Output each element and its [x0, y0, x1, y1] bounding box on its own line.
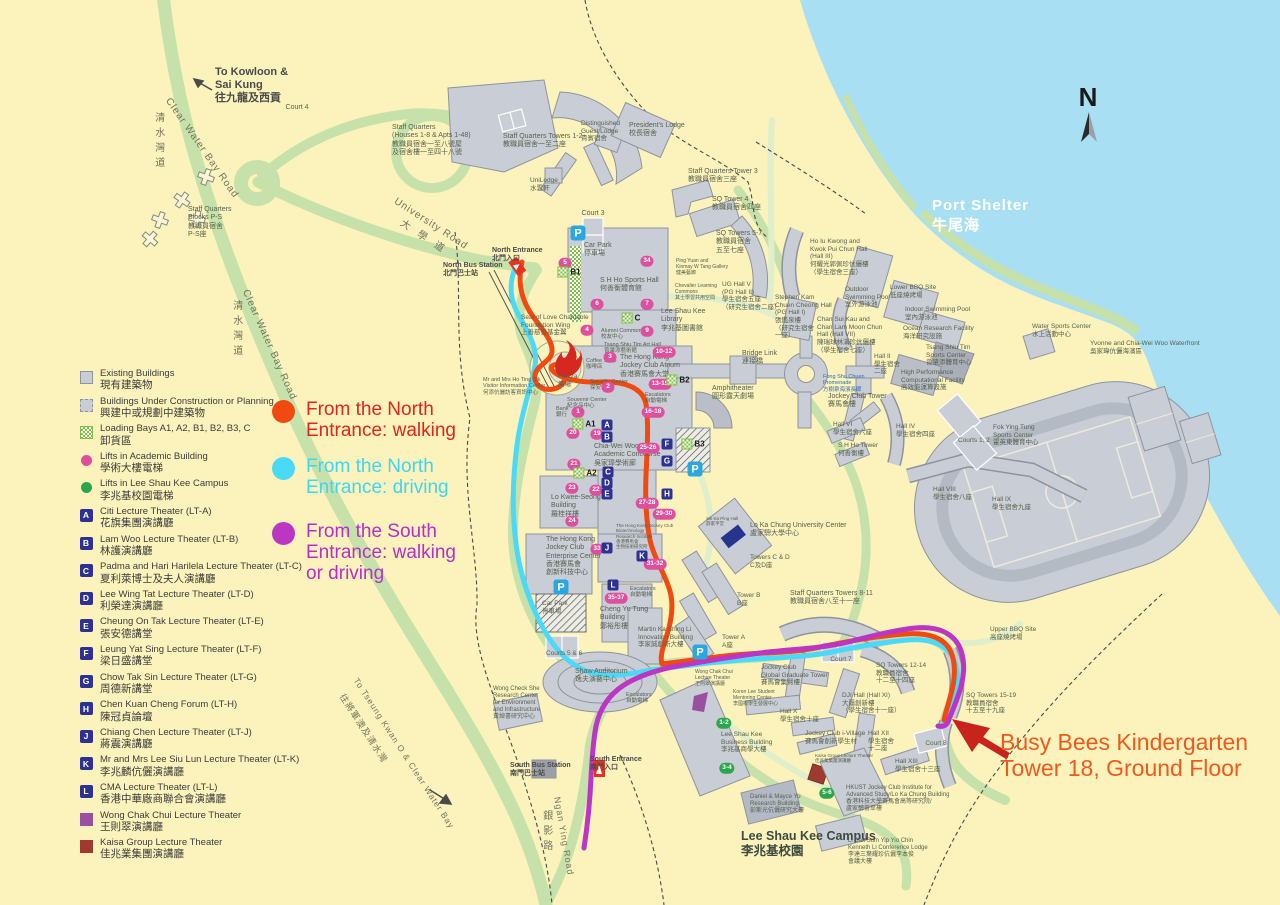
- lo-ka-chung-university-center: Lo Ka Chung University Center盧家驄大學中心: [750, 522, 847, 539]
- shaw-auditorium: Shaw Auditorium逸夫演藝中心: [575, 668, 628, 685]
- port-shelter: Port Shelter牛尾海: [932, 196, 1029, 235]
- legend-text: Loading Bays A1, A2, B1, B2, B3, C卸貨區: [100, 423, 251, 447]
- lift-marker-35-37: 35-37: [605, 593, 628, 604]
- wong-check-she-center-line: Research Center: [493, 693, 540, 700]
- loading-bay-b2: B2: [666, 375, 689, 386]
- legend-label-en: Citi Lecture Theater (LT-A): [100, 506, 212, 517]
- hall-ix-line: Hall IX: [992, 496, 1031, 504]
- south-entrance-line: 南門入口: [590, 764, 642, 772]
- legend-label-en: Chen Kuan Cheng Forum (LT-H): [100, 699, 237, 710]
- ngan-ying-road-zh-line: 銀影路: [540, 810, 552, 855]
- ho-iu-kwong-hall-line: （學生宿舍三座）: [810, 269, 869, 277]
- legend-text: Chow Tak Sin Lecture Theater (LT-G)周德新講堂: [100, 672, 257, 696]
- legend-label-zh: 陳冠貞論壇: [100, 711, 237, 724]
- route-legend-item-2: From the SouthEntrance: walkingor drivin…: [272, 521, 456, 584]
- hall-xiii: Hall XIII學生宿舍十三座: [895, 758, 941, 773]
- legend-label-en: Cheung On Tak Lecture Theater (LT-E): [100, 616, 264, 627]
- fong-shu-chuen-promenade: Fong Shu ChuenPromenade方樹泉海濱長廊: [823, 374, 865, 393]
- visitor-information-center: Mr and Mrs Ho Ting SikVisitor Informatio…: [483, 377, 545, 396]
- sq-houses: Staff Quarters(Houses 1-8 & Apts 1-48)教職…: [392, 124, 471, 157]
- presidents-lodge: President's Lodge校長宿舍: [629, 122, 685, 139]
- outdoor-pool-line: 室外游泳池: [845, 301, 890, 309]
- coffee-shop-line: 咖啡店: [586, 364, 616, 370]
- cheng-yu-tung-building-line: Building: [600, 614, 648, 622]
- hpcf: High PerformanceComputational Facility高效…: [901, 369, 965, 392]
- lift-marker-1: 1: [572, 407, 585, 418]
- legend-label-zh: 李兆麟伉儷演講廳: [100, 766, 299, 779]
- lecture-theater-marker-e: E: [602, 489, 613, 500]
- escalators-3-line: 自動電梯: [626, 698, 652, 704]
- lecture-theater-e-swatch: E: [80, 619, 93, 632]
- legend-text: Lifts in Lee Shau Kee Campus李兆基校園電梯: [100, 478, 228, 502]
- ug-hall-v: UG Hall V(PG Hall II)學生宿舍五座（研究生宿舍二座）: [722, 281, 781, 312]
- legend-swatch-box: [78, 813, 94, 826]
- court-7-line: Court 7: [830, 656, 851, 664]
- sq-tower-3-line: Staff Quarters Tower 3: [688, 168, 758, 176]
- legend-item-lift-pink: Lifts in Academic Building學術大樓電梯: [78, 451, 302, 479]
- lo-kwee-seong-building: Lo Kwee-SeongBuilding羅桂祥樓: [551, 494, 601, 519]
- waterfront: Yvonne and Chia-Wei Woo Waterfront吳家瑋伉儷海…: [1090, 340, 1200, 355]
- legend-swatch-box: A: [78, 509, 94, 522]
- court-3-line: Court 3: [582, 210, 605, 218]
- north-bus-station: North Bus Station北門巴士站: [443, 262, 503, 279]
- conference-lodge-line: Li Dak Sum Yip Yio Chin: [848, 838, 928, 845]
- hkjc-enterprise-center-line: 創新科技中心: [546, 569, 601, 577]
- water-sports-center-line: 水上活動中心: [1032, 331, 1091, 339]
- legend-label-en: Mr and Mrs Lee Siu Lun Lecture Theater (…: [100, 754, 299, 765]
- legend-text: Lee Wing Tat Lecture Theater (LT-D)利榮達演講…: [100, 589, 254, 613]
- sh-ho-sports-hall: S H Ho Sports Hall何善衡體育館: [600, 277, 659, 294]
- dji-hall-line: （學生宿舍十一座）: [842, 707, 901, 715]
- route-legend-text: From the NorthEntrance: driving: [306, 456, 449, 498]
- lecture-theater-b-swatch: B: [80, 537, 93, 550]
- biotech-research-institute: The Hong Kong Jockey ClubBiotechnologyRe…: [616, 523, 673, 549]
- legend-text: Wong Chak Chui Lecture Theater王則翠演講廳: [100, 810, 241, 834]
- sh-ho-sports-hall-line: 何善衡體育館: [600, 285, 659, 293]
- tower-a-line: A座: [722, 642, 745, 650]
- martin-li-innovation-building: Martin Ka Shing LiInnovation Building李家誠…: [638, 626, 693, 649]
- seal-of-love-wing: Seal of Love CharitableFoundation Wing上善…: [521, 314, 589, 337]
- hall-x-line: Hall X: [780, 708, 819, 716]
- lecture-theater-marker-j: J: [602, 543, 613, 554]
- martin-li-innovation-building-line: 李家誠創新大樓: [638, 641, 693, 649]
- hkust-ias-line: HKUST Jockey Club Institute for: [846, 785, 949, 792]
- legend-label-en: Chow Tak Sin Lecture Theater (LT-G): [100, 672, 257, 683]
- sq-tower-3: Staff Quarters Tower 3教職員宿舍三座: [688, 168, 758, 185]
- stephen-kam-chuen-cheong-hall-line: Stephen Kam: [775, 294, 832, 302]
- upper-bbq-site-line: Upper BBQ Site: [990, 626, 1036, 634]
- lecture-theater-marker-g: G: [662, 456, 673, 467]
- visitor-information-center-line: 何添伉儷訪客資訊中心: [483, 390, 545, 396]
- wong-check-she-center-line: Wong Check She: [493, 686, 540, 693]
- busy-bees-annotation: Busy Bees Kindergarten Tower 18, Ground …: [1000, 729, 1248, 781]
- lecture-theater-f-swatch: F: [80, 647, 93, 660]
- sik-ka-ping-hall-line: 薛家平堂: [706, 521, 738, 526]
- lecture-theater-marker-l: L: [608, 580, 619, 591]
- court-3: Court 3: [582, 210, 605, 218]
- clear-water-bay-road-1-zh: 清水灣道: [152, 112, 164, 172]
- legend-item-existing: Existing Buildings現有建築物: [78, 368, 302, 396]
- towers-c-d-line: C及D座: [750, 562, 790, 570]
- chan-sui-kau-hall-line: 陳瑞球林滿珍伉儷樓: [817, 339, 882, 347]
- tower-a-line: Tower A: [722, 634, 745, 642]
- court-7: Court 7: [830, 656, 851, 664]
- south-bus-station-line: 南門巴士站: [510, 770, 571, 778]
- lift-marker-2: 2: [602, 382, 615, 393]
- kaisa-theater-label-line: 佳兆業集團演講廳: [815, 758, 873, 763]
- existing-swatch: [80, 371, 93, 384]
- sq-tower-4: SQ Tower 4教職員宿舍四座: [712, 196, 761, 213]
- distinguished-guest-lodge-line: Distinguished: [581, 120, 620, 128]
- water-sports-center-line: Water Sports Center: [1032, 323, 1091, 331]
- legend-text: Existing Buildings現有建築物: [100, 368, 174, 392]
- ping-yuan-gallery-line: 健美藝廊: [676, 271, 728, 277]
- legend-swatch-box: B: [78, 537, 94, 550]
- route-legend-line: From the South: [306, 521, 456, 542]
- hall-ix: Hall IX學生宿舍九座: [992, 496, 1031, 511]
- legend-item-lt-j: JChiang Chen Lecture Theater (LT-J)蔣震演講廳: [78, 727, 302, 755]
- legend-swatch-box: [78, 840, 94, 853]
- waterfront-line: 吳家瑋伉儷海濱區: [1090, 348, 1200, 356]
- wong-chak-chui-theater-line: 王則翠演講廳: [695, 682, 733, 688]
- sq-towers-5-7-line: SQ Towers 5-7: [716, 230, 762, 238]
- legend-label-en: CMA Lecture Theater (LT-L): [100, 782, 226, 793]
- hall-xiii-line: 學生宿舍十三座: [895, 766, 941, 774]
- court-8: Court 8: [925, 740, 946, 748]
- north-bus-station-line: North Bus Station: [443, 262, 503, 270]
- escalators-2: Escalators自動電梯: [630, 586, 656, 599]
- route-legend-line: Entrance: walking: [306, 542, 456, 563]
- daniel-mayce-yu-building-line: Daniel & Mayce Yu: [750, 794, 804, 801]
- bridge-link-line: Bridge Link: [742, 350, 777, 358]
- legend-label-zh: 王則翠演講廳: [100, 821, 241, 834]
- legend-text: Citi Lecture Theater (LT-A)花旗集團演講廳: [100, 506, 212, 530]
- car-park-north: Car Park停車場: [584, 242, 612, 259]
- lee-shau-kee-library: Lee Shau KeeLibrary李兆基圖書館: [661, 308, 705, 333]
- dji-hall-line: DJI Hall (Hall XI): [842, 692, 901, 700]
- amphitheater-line: Amphitheater: [712, 385, 754, 393]
- daniel-mayce-yu-building: Daniel & Mayce YuResearch Building彭斯光伉儷研…: [750, 794, 804, 815]
- martin-li-innovation-building-line: Martin Ka Shing Li: [638, 626, 693, 634]
- courts-5-6-line: Courts 5 & 6: [546, 650, 582, 658]
- legend-item-lt-darkred: Kaisa Group Lecture Theater佳兆業集團演講廳: [78, 837, 302, 865]
- lift-marker-23: 23: [565, 483, 578, 494]
- lt-purple-swatch: [80, 813, 93, 826]
- sq-blocks-ps-line: Blocks P-S: [188, 214, 231, 222]
- legend-item-lt-purple: Wong Chak Chui Lecture Theater王則翠演講廳: [78, 810, 302, 838]
- legend-label-en: Leung Yat Sing Lecture Theater (LT-F): [100, 644, 261, 655]
- sq-towers-1-2: Staff Quarters Towers 1-2教職員宿舍一至二座: [503, 133, 583, 150]
- lift-marker-4: 4: [581, 325, 594, 336]
- map-legend: Existing Buildings現有建築物Buildings Under C…: [78, 368, 302, 865]
- sq-towers-8-11: Staff Quarters Towers 8-11教職員宿舍八至十一座: [790, 590, 873, 607]
- legend-label-en: Wong Chak Chui Lecture Theater: [100, 810, 241, 821]
- waterfront-line: Yvonne and Chia-Wei Woo Waterfront: [1090, 340, 1200, 348]
- lt-darkred-swatch: [80, 840, 93, 853]
- ug-hall-v-line: （研究生宿舍二座）: [722, 304, 781, 312]
- hkjc-enterprise-center-line: The Hong Kong: [546, 536, 601, 544]
- hall-vi-line: Hall VI: [833, 421, 872, 429]
- legend-swatch-box: E: [78, 619, 94, 632]
- legend-swatch-box: C: [78, 564, 94, 577]
- escalators-2-line: 自動電梯: [630, 592, 656, 598]
- sq-towers-12-14-line: SQ Towers 12-14: [876, 662, 926, 670]
- cheng-yu-tung-building-line: Cheng Yu Tung: [600, 606, 648, 614]
- legend-label-en: Lifts in Academic Building: [100, 451, 208, 462]
- legend-label-en: Loading Bays A1, A2, B1, B2, B3, C: [100, 423, 251, 434]
- chevalier-commons-line: 其士學習共用空間: [675, 296, 717, 302]
- presidents-lodge-line: 校長宿舍: [629, 130, 685, 138]
- loading-bay-a2: A2: [573, 468, 596, 479]
- student-mentoring-center: Koren Lee StudentMentoring Center李國樑學生發展…: [733, 690, 778, 708]
- legend-label-en: Lam Woo Lecture Theater (LT-B): [100, 534, 238, 545]
- busy-bees-line2: Tower 18, Ground Floor: [1000, 755, 1248, 781]
- lecture-theater-marker-k: K: [637, 551, 648, 562]
- conference-lodge-line: 會議大樓: [848, 859, 928, 866]
- daniel-mayce-yu-building-line: 彭斯光伉儷研究大樓: [750, 808, 804, 815]
- lift-marker-10-12: 10-12: [653, 347, 676, 358]
- shaw-auditorium-line: 逸夫演藝中心: [575, 676, 628, 684]
- legend-swatch-box: [78, 371, 94, 384]
- presidents-lodge-line: President's Lodge: [629, 122, 685, 130]
- distinguished-guest-lodge-line: 貴賓宿舍: [581, 135, 620, 143]
- car-park-south-line: Car Park: [542, 600, 568, 608]
- ocean-research-facility-line: 海洋研究設施: [903, 333, 974, 341]
- hall-viii-line: 學生宿舍八座: [933, 494, 972, 502]
- construction-swatch: [80, 399, 93, 412]
- chan-sui-kau-hall-line: （學生宿舍七座）: [817, 347, 882, 355]
- biotech-research-institute-line: 生物技術研究所: [616, 544, 673, 549]
- sh-ho-sports-hall-line: S H Ho Sports Hall: [600, 277, 659, 285]
- towers-c-d-line: Towers C & D: [750, 554, 790, 562]
- hall-xii-line: Hall XII: [868, 730, 894, 738]
- legend-item-lt-d: DLee Wing Tat Lecture Theater (LT-D)利榮達演…: [78, 589, 302, 617]
- tower-b: Tower BB座: [737, 592, 760, 607]
- lecture-theater-marker-a: A: [602, 420, 613, 431]
- hall-ii-line: 二座: [874, 368, 900, 376]
- route-legend-text: From the NorthEntrance: walking: [306, 399, 456, 441]
- car-park-south-line: 停車場: [542, 608, 568, 616]
- clear-water-bay-road-1-line: Clear Water Bay Road: [162, 96, 240, 201]
- hall-ii: Hall II學生宿舍二座: [874, 353, 900, 376]
- ngan-ying-road-line: Ngan Ying Road: [552, 796, 576, 876]
- ngan-ying-road: Ngan Ying Road: [552, 796, 576, 876]
- legend-label-zh: 利榮達演講廳: [100, 600, 254, 613]
- car-park-north-line: 停車場: [584, 250, 612, 258]
- towers-c-d: Towers C & DC及D座: [750, 554, 790, 569]
- sq-towers-15-19-line: 十五至十九座: [966, 707, 1016, 715]
- distinguished-guest-lodge: DistinguishedGuest Lodge貴賓宿舍: [581, 120, 620, 143]
- legend-swatch-box: L: [78, 785, 94, 798]
- route-legend-line: or driving: [306, 563, 456, 584]
- indoor-pool-line: 室內游泳池: [905, 314, 970, 322]
- lecture-theater-d-swatch: D: [80, 592, 93, 605]
- lecture-theater-marker-b: B: [602, 432, 613, 443]
- route-legend-text: From the SouthEntrance: walkingor drivin…: [306, 521, 456, 584]
- ug-hall-v-line: 學生宿舍五座: [722, 296, 781, 304]
- lift-marker-27-28: 27-28: [636, 498, 659, 509]
- hall-ix-line: 學生宿舍九座: [992, 504, 1031, 512]
- legend-label-zh: 香港中華廠商聯合會演講廳: [100, 793, 226, 806]
- hall-ii-line: Hall II: [874, 353, 900, 361]
- lecture-theater-marker-h: H: [662, 489, 673, 500]
- lift-marker-16-18: 16-18: [642, 407, 665, 418]
- hall-xii-line: 十二座: [868, 745, 894, 753]
- seal-of-love-wing-line: Seal of Love Charitable: [521, 314, 589, 322]
- legend-text: Cheung On Tak Lecture Theater (LT-E)張安德講…: [100, 616, 264, 640]
- ocean-research-facility-line: Ocean Research Facility: [903, 325, 974, 333]
- legend-text: Lifts in Academic Building學術大樓電梯: [100, 451, 208, 475]
- legend-item-lt-g: GChow Tak Sin Lecture Theater (LT-G)周德新講…: [78, 672, 302, 700]
- route-legend-line: Entrance: driving: [306, 477, 449, 498]
- lecture-theater-l-swatch: L: [80, 785, 93, 798]
- legend-label-zh: 卸貨區: [100, 435, 251, 448]
- sq-blocks-ps-line: P-S座: [188, 231, 231, 239]
- hall-vi: Hall VI學生宿舍六座: [833, 421, 872, 436]
- sq-tower-3-line: 教職員宿舍三座: [688, 176, 758, 184]
- compass: N: [1058, 84, 1118, 110]
- clear-water-bay-road-2-zh-line: 清水灣道: [230, 300, 242, 360]
- unilodge-line: 水雲軒: [530, 185, 558, 193]
- legend-text: Chiang Chen Lecture Theater (LT-J)蔣震演講廳: [100, 727, 252, 751]
- shaw-auditorium-line: Shaw Auditorium: [575, 668, 628, 676]
- bridge-link-line: 連接橋: [742, 358, 777, 366]
- legend-label-en: Chiang Chen Lecture Theater (LT-J): [100, 727, 252, 738]
- lift-marker-9: 9: [641, 326, 654, 337]
- indoor-pool-line: Indoor Swimming Pool: [905, 306, 970, 314]
- chan-sui-kau-hall-line: Chan Sui Kau and: [817, 316, 882, 324]
- lecture-theater-a-swatch: A: [80, 509, 93, 522]
- lecture-theater-c-swatch: C: [80, 564, 93, 577]
- legend-item-lt-f: FLeung Yat Sing Lecture Theater (LT-F)梁日…: [78, 644, 302, 672]
- courts-1-2: Courts 1, 2: [958, 437, 990, 445]
- clear-water-bay-road-1-zh-line: 清水灣道: [152, 112, 164, 172]
- legend-label-en: Kaisa Group Lecture Theater: [100, 837, 222, 848]
- legend-label-zh: 興建中或規劃中建築物: [100, 407, 274, 420]
- ho-iu-kwong-hall-line: Ho Iu Kwong and: [810, 238, 869, 246]
- sq-houses-line: 教職員宿舍一至八號屋: [392, 141, 471, 149]
- lecture-theater-k-swatch: K: [80, 757, 93, 770]
- legend-item-lt-b: BLam Woo Lecture Theater (LT-B)林護演講廳: [78, 534, 302, 562]
- legend-text: Lam Woo Lecture Theater (LT-B)林護演講廳: [100, 534, 238, 558]
- legend-text: Kaisa Group Lecture Theater佳兆業集團演講廳: [100, 837, 222, 861]
- legend-label-zh: 學術大樓電梯: [100, 462, 208, 475]
- lecture-theater-marker-c: C: [603, 467, 614, 478]
- legend-item-lt-c: CPadma and Hari Harilela Lecture Theater…: [78, 561, 302, 589]
- legend-swatch-box: [78, 454, 94, 466]
- lsk-business-building-line: 李兆基商學大樓: [721, 746, 772, 754]
- sh-ho-tower-line: 何善衡樓: [838, 450, 878, 458]
- lo-kwee-seong-building-line: Building: [551, 502, 601, 510]
- hall-x: Hall X學生宿舍十座: [780, 708, 819, 723]
- hkust-ias-line: 盧家驄薈萃樓: [846, 806, 949, 813]
- sq-tower-4-line: SQ Tower 4: [712, 196, 761, 204]
- wong-check-she-center-line: 黃焯書研究中心: [493, 714, 540, 721]
- legend-swatch-box: [78, 399, 94, 412]
- route-dot: [272, 457, 295, 480]
- hpcf-line: 高效能運算設施: [901, 384, 965, 392]
- ping-yuan-gallery: Ping Yuan andKinmay W Tang Gallery健美藝廊: [676, 259, 728, 277]
- to-kowloon-line: Sai Kung: [215, 79, 288, 92]
- to-kowloon-line: 往九龍及西貢: [215, 92, 288, 105]
- sq-houses-line: (Houses 1-8 & Apts 1-48): [392, 132, 471, 140]
- lift-green-marker-1-2: 1-2: [716, 718, 731, 729]
- hpcf-line: High Performance: [901, 369, 965, 377]
- conference-lodge: Li Dak Sum Yip Yio ChinKenneth Li Confer…: [848, 838, 928, 866]
- busy-bees-line1: Busy Bees Kindergarten: [1000, 729, 1248, 755]
- legend-item-lt-a: ACiti Lecture Theater (LT-A)花旗集團演講廳: [78, 506, 302, 534]
- court-4-line: Court 4: [286, 104, 309, 112]
- lecture-theater-marker-f: F: [662, 439, 673, 450]
- loading-bay-c: C: [622, 313, 641, 324]
- sik-ka-ping-hall: Sik Ka Ping Hall薛家平堂: [706, 516, 738, 527]
- sq-towers-8-11-line: 教職員宿舍八至十一座: [790, 598, 873, 606]
- legend-swatch-box: [78, 481, 94, 493]
- unilodge: UniLodge水雲軒: [530, 177, 558, 192]
- loading-bay-b1: B1: [557, 267, 580, 278]
- fok-ying-tung-sports-center-line: 霍英東體育中心: [993, 439, 1039, 447]
- chan-sui-kau-hall: Chan Sui Kau andChan Lam Moon ChunHall (…: [817, 316, 882, 354]
- lift-marker-3: 3: [604, 352, 617, 363]
- escalators-1-line: 自動電梯: [645, 398, 671, 404]
- tsang-shiu-tim-sports-center: Tsang Shiu TimSports Center曾肇添體育中心: [926, 344, 972, 367]
- chan-sui-kau-hall-line: Chan Lam Moon Chun: [817, 324, 882, 332]
- car-park-south: Car Park停車場: [542, 600, 568, 615]
- parking-icon: P: [688, 462, 703, 477]
- sq-towers-15-19-line: SQ Towers 15-19: [966, 692, 1016, 700]
- legend-label-zh: 花旗集團演講廳: [100, 517, 212, 530]
- lift-green-swatch: [81, 482, 92, 493]
- tsang-shiu-tim-sports-center-line: Tsang Shiu Tim: [926, 344, 972, 352]
- sq-towers-1-2-line: Staff Quarters Towers 1-2: [503, 133, 583, 141]
- ho-iu-kwong-hall-line: Kwok Pui Chun Hall: [810, 246, 869, 254]
- lsk-business-building-line: Lee Shau Kee: [721, 731, 772, 739]
- hall-vi-line: 學生宿舍六座: [833, 429, 872, 437]
- sq-towers-12-14: SQ Towers 12-14教職員宿舍十二至十四座: [876, 662, 926, 685]
- wong-chak-chui-theater: Wong Chak ChuiLecture Theater王則翠演講廳: [695, 670, 733, 688]
- clear-water-bay-road-1: Clear Water Bay Road: [162, 96, 240, 201]
- tower-a: Tower AA座: [722, 634, 745, 649]
- bank-line: 銀行: [556, 412, 569, 418]
- hall-viii-line: Hall VIII: [933, 486, 972, 494]
- sq-towers-5-7-line: 五至七座: [716, 247, 762, 255]
- ho-iu-kwong-hall-line: (Hall III): [810, 253, 869, 261]
- lift-marker-25-26: 25-26: [637, 443, 660, 454]
- route-legend-item-1: From the NorthEntrance: driving: [272, 456, 449, 498]
- jc-global-graduate-tower: Jockey ClubGlobal Graduate Tower賽馬會集賢樓: [761, 664, 828, 687]
- lecture-theater-marker-d: D: [602, 478, 613, 489]
- legend-label-en: Lee Wing Tat Lecture Theater (LT-D): [100, 589, 254, 600]
- lift-marker-7: 7: [641, 299, 654, 310]
- lee-shau-kee-library-line: Library: [661, 316, 705, 324]
- sq-towers-12-14-line: 十二至十四座: [876, 677, 926, 685]
- chevalier-commons: Chevalier LearningCommons其士學習共用空間: [675, 284, 717, 302]
- lift-marker-6: 6: [591, 299, 604, 310]
- legend-text: Buildings Under Construction or Planning…: [100, 396, 274, 420]
- sh-ho-tower: S H Ho Tower何善衡樓: [838, 442, 878, 457]
- loading-swatch: [80, 426, 93, 439]
- lecture-theater-h-swatch: H: [80, 702, 93, 715]
- unilodge-line: UniLodge: [530, 177, 558, 185]
- sq-tower-4-line: 教職員宿舍四座: [712, 204, 761, 212]
- lecture-theater-j-swatch: J: [80, 730, 93, 743]
- clear-water-bay-road-2-zh: 清水灣道: [230, 300, 242, 360]
- loading-bay-a1: A1: [572, 419, 595, 430]
- ho-iu-kwong-hall: Ho Iu Kwong andKwok Pui Chun Hall(Hall I…: [810, 238, 869, 276]
- court-4: Court 4: [286, 104, 309, 112]
- stephen-kam-chuen-cheong-hall-line: Chuen Cheong Hall: [775, 302, 832, 310]
- loading-bay-b3: B3: [681, 439, 704, 450]
